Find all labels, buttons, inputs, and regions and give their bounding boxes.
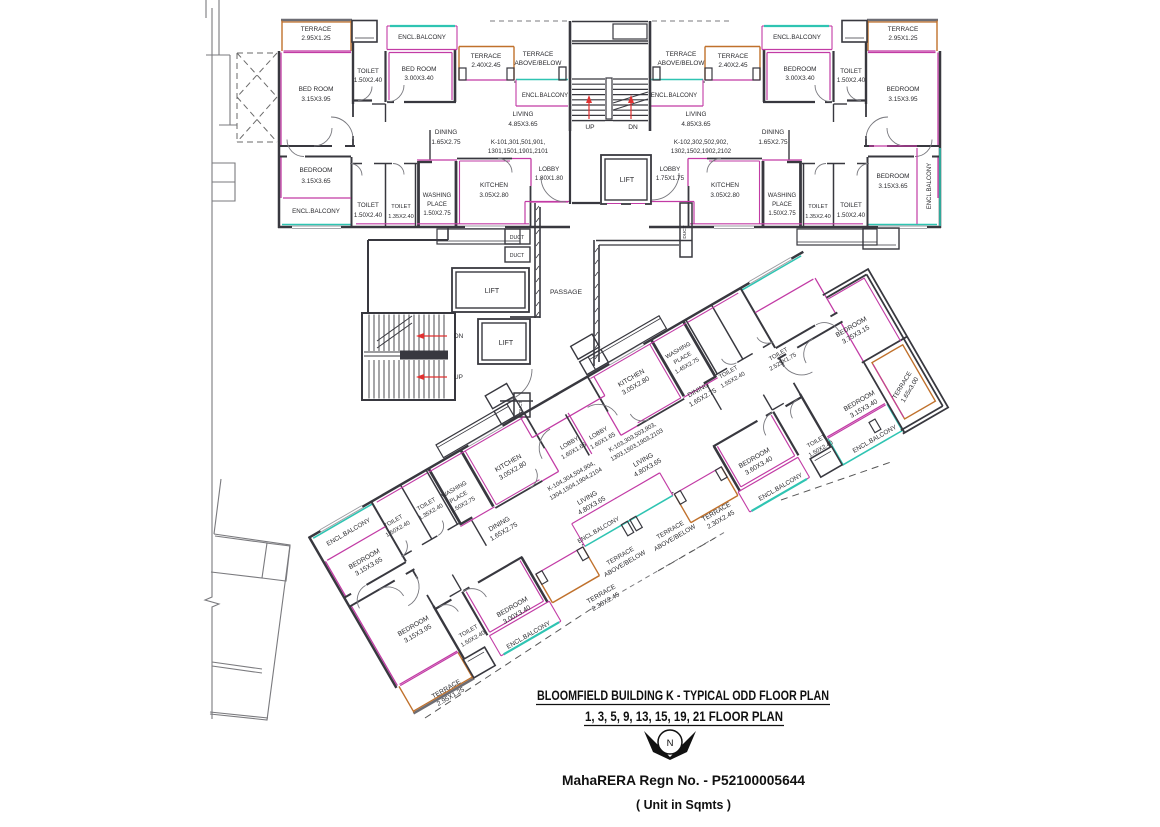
svg-text:2.95X1.25: 2.95X1.25: [888, 35, 918, 42]
svg-text:1.35X2.40: 1.35X2.40: [388, 214, 414, 220]
svg-text:3.15X3.95: 3.15X3.95: [301, 96, 331, 103]
svg-text:2.95X1.25: 2.95X1.25: [301, 35, 331, 42]
svg-text:ENCL.BALCONY: ENCL.BALCONY: [773, 34, 821, 41]
svg-text:1.50X2.40: 1.50X2.40: [837, 212, 866, 219]
svg-text:TOILET: TOILET: [391, 204, 411, 210]
svg-text:LOBBY: LOBBY: [660, 166, 681, 173]
svg-text:TERRACE: TERRACE: [301, 26, 332, 33]
svg-text:TERRACE: TERRACE: [666, 51, 697, 58]
svg-text:DUCT: DUCT: [682, 225, 688, 238]
svg-text:DINING: DINING: [762, 129, 784, 136]
svg-text:TERRACE: TERRACE: [888, 26, 919, 33]
svg-text:4.85X3.65: 4.85X3.65: [508, 121, 538, 128]
svg-text:DN: DN: [628, 124, 638, 131]
svg-text:3.05X2.80: 3.05X2.80: [710, 192, 740, 199]
svg-text:1.50X2.75: 1.50X2.75: [423, 211, 451, 217]
svg-text:WASHING: WASHING: [768, 193, 797, 199]
svg-text:1.50X2.75: 1.50X2.75: [768, 211, 796, 217]
svg-text:ENCL.BALCONY: ENCL.BALCONY: [522, 93, 568, 99]
svg-text:DUCT: DUCT: [510, 253, 525, 259]
svg-text:MahaRERA Regn No. - P521000056: MahaRERA Regn No. - P52100005644: [562, 773, 805, 788]
svg-text:3.15X3.65: 3.15X3.65: [301, 178, 331, 185]
svg-text:ENCL.BALCONY: ENCL.BALCONY: [292, 208, 340, 215]
svg-text:LOBBY: LOBBY: [539, 166, 560, 173]
svg-text:1.50X2.40: 1.50X2.40: [354, 212, 383, 219]
svg-text:1.65X2.75: 1.65X2.75: [758, 139, 788, 146]
svg-text:TOILET: TOILET: [357, 68, 379, 75]
svg-text:ENCL.BALCONY: ENCL.BALCONY: [651, 93, 697, 99]
svg-text:3.00X3.40: 3.00X3.40: [404, 75, 434, 82]
svg-text:BED ROOM: BED ROOM: [299, 86, 334, 93]
svg-text:3.00X3.40: 3.00X3.40: [785, 75, 815, 82]
svg-text:ENCL.BALCONY: ENCL.BALCONY: [398, 34, 446, 41]
svg-text:PLACE: PLACE: [427, 202, 447, 208]
svg-text:LIVING: LIVING: [513, 111, 534, 118]
svg-text:1.75X1.75: 1.75X1.75: [656, 175, 685, 182]
svg-text:ENCL.BALCONY: ENCL.BALCONY: [927, 163, 933, 209]
svg-text:BEDROOM: BEDROOM: [299, 167, 332, 174]
svg-text:1, 3, 5, 9, 13, 15, 19, 21 FLO: 1, 3, 5, 9, 13, 15, 19, 21 FLOOR PLAN: [585, 709, 783, 725]
svg-text:LIFT: LIFT: [485, 288, 500, 295]
svg-text:1.35X2.40: 1.35X2.40: [805, 214, 831, 220]
svg-text:1.80X1.80: 1.80X1.80: [535, 175, 564, 182]
svg-text:DINING: DINING: [435, 129, 457, 136]
svg-text:TERRACE: TERRACE: [471, 53, 502, 60]
svg-text:TOILET: TOILET: [357, 202, 379, 209]
svg-text:KITCHEN: KITCHEN: [480, 182, 508, 189]
svg-text:ABOVE/BELOW: ABOVE/BELOW: [658, 60, 706, 67]
svg-text:( Unit in Sqmts ): ( Unit in Sqmts ): [636, 797, 731, 812]
svg-text:UP: UP: [585, 124, 595, 131]
svg-text:1.50X2.40: 1.50X2.40: [837, 77, 866, 84]
svg-text:4.85X3.65: 4.85X3.65: [681, 121, 711, 128]
svg-text:N: N: [667, 738, 674, 749]
svg-text:TOILET: TOILET: [840, 68, 862, 75]
svg-text:PLACE: PLACE: [772, 202, 792, 208]
svg-text:UP: UP: [454, 374, 463, 381]
svg-text:WASHING: WASHING: [423, 193, 452, 199]
svg-text:1.50X2.40: 1.50X2.40: [354, 77, 383, 84]
svg-text:BEDROOM: BEDROOM: [876, 173, 909, 180]
svg-text:TOILET: TOILET: [840, 202, 862, 209]
svg-text:K-102,302,502,902,: K-102,302,502,902,: [674, 139, 729, 146]
svg-text:TERRACE: TERRACE: [523, 51, 554, 58]
svg-text:TOILET: TOILET: [808, 204, 828, 210]
svg-text:2.40X2.45: 2.40X2.45: [471, 62, 501, 69]
svg-text:1302,1502,1902,2102: 1302,1502,1902,2102: [671, 148, 732, 155]
svg-text:ABOVE/BELOW: ABOVE/BELOW: [515, 60, 563, 67]
svg-text:BLOOMFIELD BUILDING K - TYPICA: BLOOMFIELD BUILDING K - TYPICAL ODD FLOO…: [537, 688, 829, 704]
svg-text:LIVING: LIVING: [686, 111, 707, 118]
svg-text:LIFT: LIFT: [620, 177, 635, 184]
svg-text:1.65X2.75: 1.65X2.75: [431, 139, 461, 146]
svg-text:1301,1501,1901,2101: 1301,1501,1901,2101: [488, 148, 549, 155]
svg-text:PASSAGE: PASSAGE: [550, 289, 582, 296]
svg-text:KITCHEN: KITCHEN: [711, 182, 739, 189]
svg-text:3.15X3.65: 3.15X3.65: [878, 183, 908, 190]
svg-text:LIFT: LIFT: [499, 340, 514, 347]
svg-text:BEDROOM: BEDROOM: [783, 66, 816, 73]
svg-text:TERRACE: TERRACE: [718, 53, 749, 60]
svg-text:DN: DN: [454, 333, 464, 340]
svg-text:3.15X3.95: 3.15X3.95: [888, 96, 918, 103]
svg-text:K-101,301,501,901,: K-101,301,501,901,: [491, 139, 546, 146]
svg-text:2.40X2.45: 2.40X2.45: [718, 62, 748, 69]
svg-text:BEDROOM: BEDROOM: [886, 86, 919, 93]
svg-text:BED ROOM: BED ROOM: [402, 66, 437, 73]
svg-text:3.05X2.80: 3.05X2.80: [479, 192, 509, 199]
svg-text:DUCT: DUCT: [510, 235, 525, 241]
